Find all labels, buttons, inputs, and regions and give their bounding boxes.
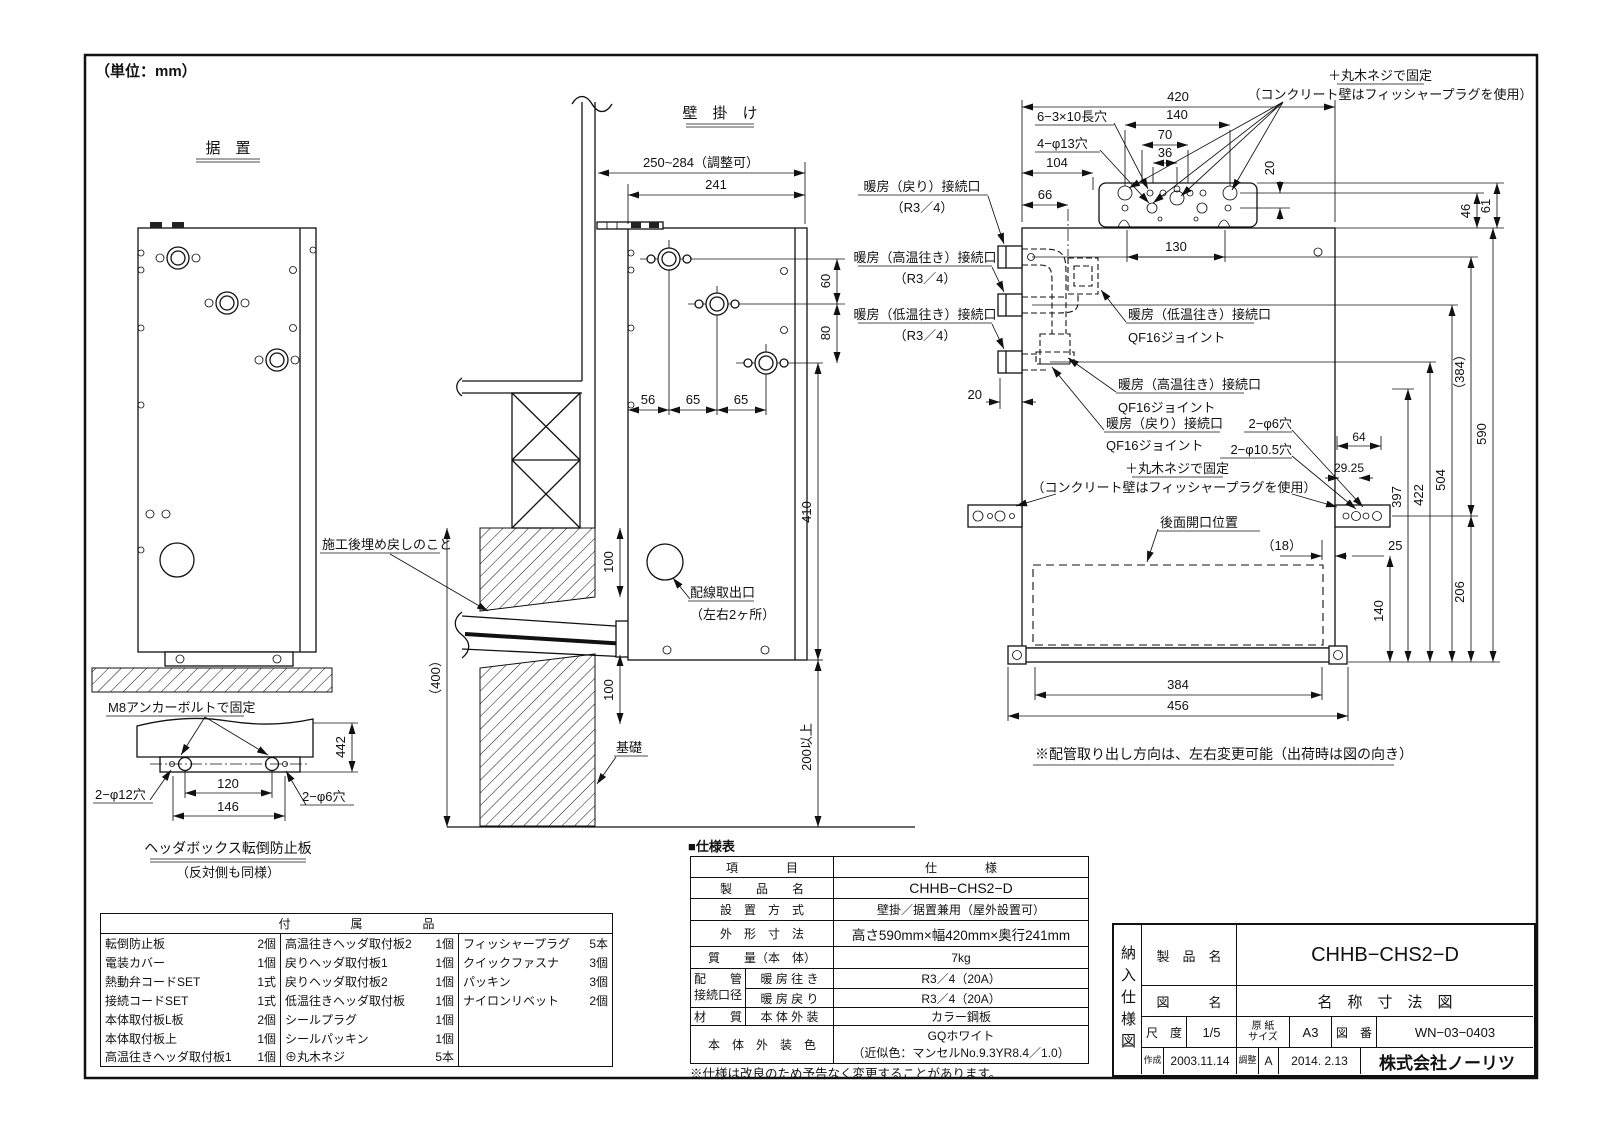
dim-422: 422 bbox=[1411, 484, 1426, 506]
dim-36: 36 bbox=[1158, 145, 1172, 160]
label-rear-open: 後面開口位置 bbox=[1160, 515, 1238, 530]
title-block-number-label: 図 番 bbox=[1332, 1017, 1377, 1048]
title-block-product-value: CHHB−CHS2−D bbox=[1237, 925, 1533, 986]
part-qty: 1個 bbox=[429, 1010, 459, 1029]
part-name: 低温往きヘッダ取付板 bbox=[281, 991, 429, 1010]
callout-conn-low: 暖房（低温往き）接続口 bbox=[853, 307, 996, 322]
dim-range: 250~284（調整可） bbox=[643, 155, 759, 170]
callout-screw-top-sub: （コンクリート壁はフィッシャープラグを使用） bbox=[1248, 87, 1533, 102]
title-block-created-value: 2003.11.14 bbox=[1164, 1048, 1237, 1074]
dim-384p: （384） bbox=[1452, 348, 1467, 396]
part-qty bbox=[573, 1048, 613, 1067]
part-qty: 2個 bbox=[253, 934, 281, 953]
part-name: 電装カバー bbox=[101, 953, 253, 972]
part-qty: 1個 bbox=[253, 1048, 281, 1067]
spec-header-item: 項 目 bbox=[691, 857, 834, 878]
dim-20t: 20 bbox=[1262, 161, 1277, 175]
dim-590: 590 bbox=[1474, 423, 1489, 445]
spec-weight-value: 7kg bbox=[834, 947, 1089, 969]
part-qty: 1式 bbox=[253, 972, 281, 991]
top-mounting-bracket bbox=[1099, 183, 1257, 227]
callout-screw-mid-sub: （コンクリート壁はフィッシャープラグを使用） bbox=[1032, 480, 1317, 495]
dim-384: 384 bbox=[1167, 677, 1189, 692]
figure-title-sueoki: 据 置 bbox=[205, 140, 250, 157]
part-qty: 3個 bbox=[573, 953, 613, 972]
dim-400: （400） bbox=[428, 654, 443, 702]
title-block-paper-value: A3 bbox=[1290, 1017, 1332, 1048]
dim-397: 397 bbox=[1389, 486, 1404, 508]
part-name bbox=[459, 1010, 573, 1029]
title-block: 納入仕様図 製 品 名 CHHB−CHS2−D 図 名 名 称 寸 法 図 尺 … bbox=[1112, 923, 1536, 1077]
part-qty bbox=[573, 1010, 613, 1029]
part-qty: 1個 bbox=[429, 991, 459, 1010]
part-name: シールパッキン bbox=[281, 1029, 429, 1048]
dim-80: 80 bbox=[818, 326, 833, 340]
callout-conn-low-sub: （R3／4） bbox=[894, 328, 957, 343]
spec-product-label: 製 品 名 bbox=[691, 878, 834, 899]
spec-pipe-label-1: 配 管 bbox=[694, 972, 742, 986]
callout-conn-return: 暖房（戻り）接続口 bbox=[863, 179, 980, 194]
dim-70: 70 bbox=[1158, 127, 1172, 142]
part-qty: 3個 bbox=[573, 972, 613, 991]
spec-material-value: カラー鋼板 bbox=[834, 1008, 1089, 1026]
part-name bbox=[459, 1029, 573, 1048]
anti-tip-plate-detail: M8アンカーボルトで固定 442 120 146 2−φ12穴 2−φ6穴 bbox=[93, 700, 358, 880]
dim-120: 120 bbox=[217, 776, 239, 791]
figure-wall-mounted: 壁 掛 け bbox=[320, 97, 915, 828]
label-hole6: 2−φ6穴 bbox=[1249, 416, 1292, 431]
spec-install-label: 設 置 方 式 bbox=[691, 899, 834, 921]
dim-140r: 140 bbox=[1371, 600, 1386, 622]
callout-m8-anchor: M8アンカーボルトで固定 bbox=[108, 700, 256, 715]
spec-pipe-label: 配 管 接続口径 bbox=[691, 969, 746, 1008]
title-block-doc-type: 納入仕様図 bbox=[1114, 925, 1142, 1074]
spec-color-label: 本 体 外 装 色 bbox=[691, 1026, 834, 1064]
caption-anti-tip: ヘッダボックス転倒防止板 bbox=[144, 840, 312, 856]
dim-100a: 100 bbox=[601, 551, 616, 573]
part-name: ナイロンリベット bbox=[459, 991, 573, 1010]
part-qty: 1個 bbox=[429, 1029, 459, 1048]
dim-61: 61 bbox=[1478, 199, 1493, 213]
title-block-company-logo: 株式会社ノーリツ bbox=[1361, 1048, 1533, 1074]
paper-label-line2: サイズ bbox=[1248, 1032, 1278, 1044]
title-block-number-value: WN−03−0403 bbox=[1377, 1017, 1533, 1048]
title-block-adjusted-rev: A bbox=[1259, 1048, 1279, 1074]
label-hole105: 2−φ10.5穴 bbox=[1230, 442, 1292, 457]
title-block-paper-label: 原 紙 サイズ bbox=[1237, 1017, 1290, 1048]
callout-joint-low: 暖房（低温往き）接続口 bbox=[1128, 307, 1271, 322]
dim-442: 442 bbox=[333, 736, 348, 758]
dim-25: 25 bbox=[1388, 538, 1402, 553]
spec-dims-label: 外 形 寸 法 bbox=[691, 921, 834, 947]
unit-note: （単位：mm） bbox=[95, 62, 197, 80]
spec-pipe-out-label: 暖 房 往 き bbox=[746, 969, 834, 989]
note-pipe-direction: ※配管取り出し方向は、左右変更可能（出荷時は図の向き） bbox=[1035, 746, 1413, 762]
part-name: パッキン bbox=[459, 972, 573, 991]
parts-row: 本体取付板L板2個 シールプラグ1個 bbox=[101, 1010, 613, 1029]
part-name: 熱動弁コードSET bbox=[101, 972, 253, 991]
callout-conn-return-sub: （R3／4） bbox=[891, 200, 954, 215]
dim-140t: 140 bbox=[1166, 107, 1188, 122]
callout-joint-return: 暖房（戻り）接続口 bbox=[1106, 416, 1223, 431]
foundation-hatch-upper bbox=[480, 528, 595, 611]
title-block-scale-value: 1/5 bbox=[1187, 1017, 1237, 1048]
figure-freestanding: 据 置 M8アンカーボルトで固定 bbox=[92, 140, 358, 880]
dim-104: 104 bbox=[1046, 155, 1068, 170]
dim-420: 420 bbox=[1167, 89, 1189, 104]
callout-conn-hot: 暖房（高温往き）接続口 bbox=[853, 250, 996, 265]
title-block-created-label: 作成 bbox=[1142, 1048, 1164, 1074]
dim-100b: 100 bbox=[601, 679, 616, 701]
parts-row: 接続コードSET1式 低温往きヘッダ取付板1個 ナイロンリベット2個 bbox=[101, 991, 613, 1010]
spec-table: 項 目 仕 様 製 品 名 CHHB−CHS2−D 設 置 方 式 壁掛／据置兼… bbox=[690, 856, 1089, 1064]
part-name: 本体取付板L板 bbox=[101, 1010, 253, 1029]
part-name: シールプラグ bbox=[281, 1010, 429, 1029]
parts-table: 付 属 品 転倒防止板2個 高温往きヘッダ取付板21個 フィッシャープラグ5本 … bbox=[100, 913, 613, 1067]
spec-color-value-2: （近似色：マンセルNo.9.3YR8.4／1.0） bbox=[852, 1046, 1069, 1060]
dim-456: 456 bbox=[1167, 698, 1189, 713]
dim-18: （18） bbox=[1262, 538, 1302, 553]
spec-pipe-ret-label: 暖 房 戻 り bbox=[746, 989, 834, 1008]
spec-install-value: 壁掛／据置兼用（屋外設置可） bbox=[834, 899, 1089, 921]
paper-label-line1: 原 紙 bbox=[1252, 1021, 1275, 1033]
callout-joint-hot-sub: QF16ジョイント bbox=[1118, 400, 1216, 415]
part-qty: 2個 bbox=[253, 1010, 281, 1029]
label-hole-phi12: 2−φ12穴 bbox=[95, 787, 146, 802]
foundation-hatch-lower bbox=[480, 654, 595, 826]
callout-wiring: 配線取出口 bbox=[690, 585, 755, 600]
part-name: ⊕丸木ネジ bbox=[281, 1048, 429, 1067]
label-slot: 6−3×10長穴 bbox=[1037, 109, 1107, 124]
title-block-drawing-label: 図 名 bbox=[1142, 986, 1237, 1017]
part-qty: 5本 bbox=[429, 1048, 459, 1067]
part-qty: 1個 bbox=[253, 1029, 281, 1048]
callout-backfill: 施工後埋め戻しのこと bbox=[322, 537, 452, 552]
dim-206: 206 bbox=[1452, 581, 1467, 603]
drawing-sheet: （単位：mm） 据 置 M8アンカーボルトで固定 bbox=[0, 0, 1600, 1131]
spec-weight-label: 質 量（本 体） bbox=[691, 947, 834, 969]
title-block-drawing-value: 名 称 寸 法 図 bbox=[1237, 986, 1533, 1017]
callout-joint-hot: 暖房（高温往き）接続口 bbox=[1118, 377, 1261, 392]
dim-46: 46 bbox=[1458, 204, 1473, 218]
dim-241: 241 bbox=[705, 177, 727, 192]
dim-146: 146 bbox=[217, 799, 239, 814]
dim-60: 60 bbox=[818, 274, 833, 288]
part-name: 本体取付板上 bbox=[101, 1029, 253, 1048]
spec-dims-value: 高さ590mm×幅420mm×奥行241mm bbox=[834, 921, 1089, 947]
spec-header-spec: 仕 様 bbox=[834, 857, 1089, 878]
callout-wiring-sub: （左右2ヶ所） bbox=[690, 607, 775, 622]
parts-row: 電装カバー1個 戻りヘッダ取付板11個 クイックファスナ3個 bbox=[101, 953, 613, 972]
part-qty: 1個 bbox=[429, 934, 459, 953]
spec-material-sub: 本 体 外 装 bbox=[746, 1008, 834, 1026]
dim-56: 56 bbox=[641, 392, 655, 407]
ground-hatch bbox=[92, 668, 332, 692]
part-qty: 5本 bbox=[573, 934, 613, 953]
spec-table-title: ■仕様表 bbox=[688, 836, 735, 855]
spec-product-value: CHHB−CHS2−D bbox=[834, 878, 1089, 899]
parts-row: 高温往きヘッダ取付板11個 ⊕丸木ネジ5本 bbox=[101, 1048, 613, 1067]
part-qty: 1式 bbox=[253, 991, 281, 1010]
label-hole-phi6: 2−φ6穴 bbox=[302, 789, 345, 804]
part-name: 転倒防止板 bbox=[101, 934, 253, 953]
callout-joint-return-sub: QF16ジョイント bbox=[1106, 438, 1204, 453]
parts-row: 熱動弁コードSET1式 戻りヘッダ取付板21個 パッキン3個 bbox=[101, 972, 613, 991]
parts-header: 付 属 品 bbox=[101, 914, 613, 934]
figure-rear-view: 420 140 70 36 104 66 130 20 46 61 ＋丸木ネジで… bbox=[853, 68, 1532, 765]
dim-504: 504 bbox=[1433, 469, 1448, 491]
spec-color-value: GQホワイト （近似色：マンセルNo.9.3YR8.4／1.0） bbox=[834, 1026, 1089, 1064]
part-qty: 2個 bbox=[573, 991, 613, 1010]
part-qty bbox=[573, 1029, 613, 1048]
title-block-product-label: 製 品 名 bbox=[1142, 925, 1237, 986]
callout-joint-low-sub: QF16ジョイント bbox=[1128, 330, 1226, 345]
title-block-adjusted-value: 2014. 2.13 bbox=[1279, 1048, 1361, 1074]
part-name: 戻りヘッダ取付板2 bbox=[281, 972, 429, 991]
part-name: 戻りヘッダ取付板1 bbox=[281, 953, 429, 972]
dim-20l: 20 bbox=[968, 387, 982, 402]
spec-material-label: 材 質 bbox=[691, 1008, 746, 1026]
dim-65b: 65 bbox=[734, 392, 748, 407]
callout-screw-top: ＋丸木ネジで固定 bbox=[1328, 68, 1432, 83]
spec-color-value-1: GQホワイト bbox=[928, 1029, 995, 1043]
part-name: フィッシャープラグ bbox=[459, 934, 573, 953]
parts-row: 本体取付板上1個 シールパッキン1個 bbox=[101, 1029, 613, 1048]
part-name bbox=[459, 1048, 573, 1067]
callout-screw-mid: ＋丸木ネジで固定 bbox=[1125, 461, 1229, 476]
part-name: 高温往きヘッダ取付板2 bbox=[281, 934, 429, 953]
part-qty: 1個 bbox=[429, 972, 459, 991]
dim-66: 66 bbox=[1038, 187, 1052, 202]
title-block-scale-label: 尺 度 bbox=[1142, 1017, 1187, 1048]
callout-conn-hot-sub: （R3／4） bbox=[894, 271, 957, 286]
dim-65a: 65 bbox=[686, 392, 700, 407]
caption-anti-tip-sub: （反対側も同様） bbox=[176, 865, 280, 880]
dim-2925: 29.25 bbox=[1334, 461, 1364, 475]
callout-foundation: 基礎 bbox=[616, 740, 642, 755]
spec-pipe-ret-value: R3／4（20A） bbox=[834, 989, 1089, 1008]
spec-pipe-out-value: R3／4（20A） bbox=[834, 969, 1089, 989]
part-name: 接続コードSET bbox=[101, 991, 253, 1010]
dim-64: 64 bbox=[1352, 430, 1366, 444]
label-hole13: 4−φ13穴 bbox=[1037, 136, 1088, 151]
dim-200min: 200以上 bbox=[799, 723, 814, 771]
dim-410: 410 bbox=[799, 501, 814, 523]
part-qty: 1個 bbox=[253, 953, 281, 972]
figure-title-kabekake: 壁 掛 け bbox=[682, 105, 757, 122]
part-name: クイックファスナ bbox=[459, 953, 573, 972]
title-block-adjusted-label: 調整 bbox=[1237, 1048, 1259, 1074]
parts-row: 転倒防止板2個 高温往きヘッダ取付板21個 フィッシャープラグ5本 bbox=[101, 934, 613, 953]
part-name: 高温往きヘッダ取付板1 bbox=[101, 1048, 253, 1067]
spec-pipe-label-2: 接続口径 bbox=[694, 988, 742, 1002]
dim-130: 130 bbox=[1165, 239, 1187, 254]
part-qty: 1個 bbox=[429, 953, 459, 972]
spec-note: ※仕様は改良のため予告なく変更することがあります。 bbox=[690, 1063, 1001, 1082]
